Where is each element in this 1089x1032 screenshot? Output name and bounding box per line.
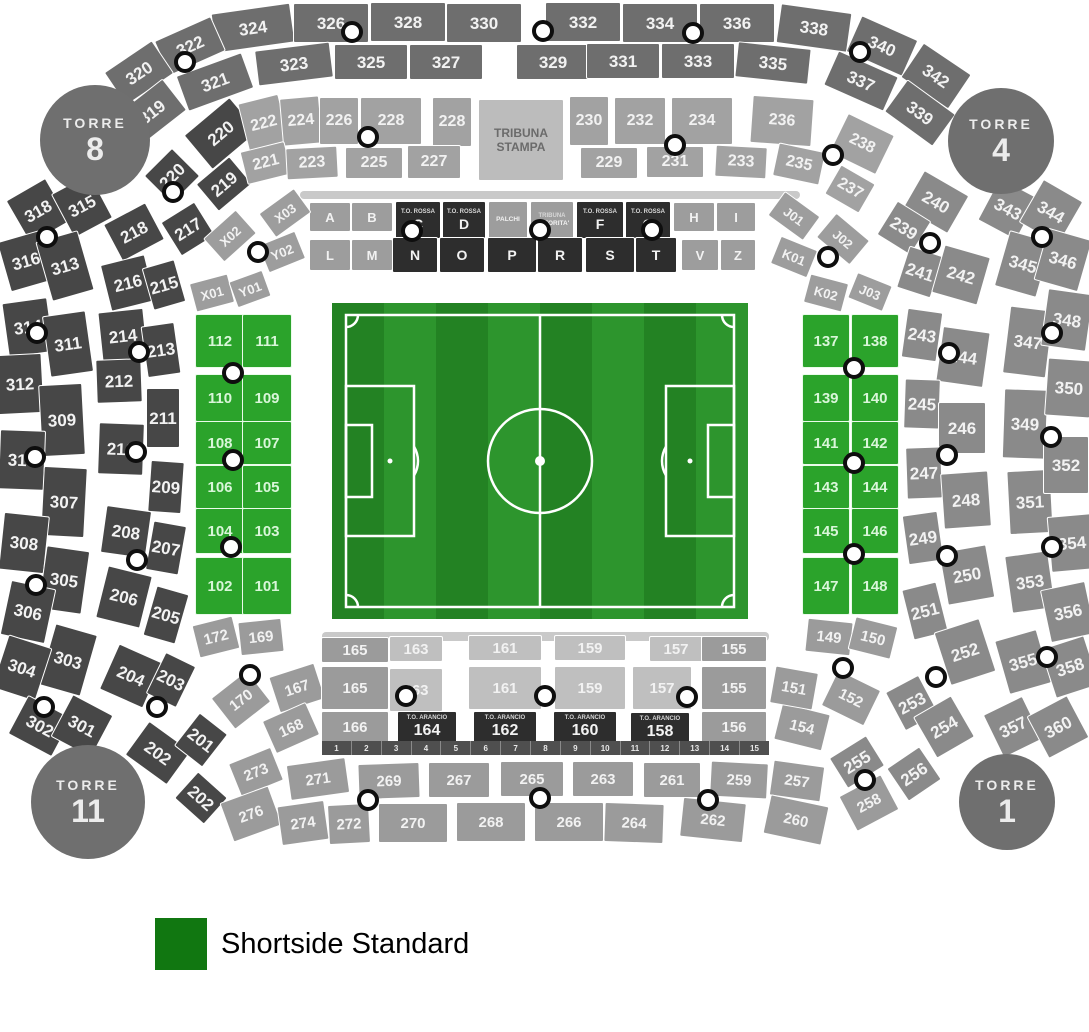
section-107[interactable]: 107 xyxy=(242,421,292,465)
section-label: 147 xyxy=(813,579,838,594)
row-number-cell: 5 xyxy=(441,741,470,755)
section-sublabel: T.O. ROSSA xyxy=(583,209,617,216)
seat-view-marker[interactable] xyxy=(936,444,958,466)
row-number-cell: 4 xyxy=(412,741,441,755)
seat-view-marker[interactable] xyxy=(682,22,704,44)
section-166: 166 xyxy=(321,711,389,743)
section-label: 305 xyxy=(49,570,79,591)
seat-view-marker[interactable] xyxy=(1031,226,1053,248)
seat-view-marker[interactable] xyxy=(126,549,148,571)
section-label: 247 xyxy=(910,464,939,482)
section-y01: Y01 xyxy=(228,270,271,309)
section-312: 312 xyxy=(0,353,45,415)
section-label: 212 xyxy=(105,372,134,390)
section-264: 264 xyxy=(603,802,664,844)
seat-view-marker[interactable] xyxy=(849,41,871,63)
torre-number: 8 xyxy=(86,133,104,165)
section-sublabel: T.O. ARANCIO xyxy=(565,715,605,722)
section-l: L xyxy=(309,239,351,271)
section-label: 345 xyxy=(1007,252,1039,276)
section-label: X02 xyxy=(217,223,243,248)
section-103[interactable]: 103 xyxy=(242,508,292,554)
section-label: 250 xyxy=(952,564,983,586)
section-143[interactable]: 143 xyxy=(802,465,850,509)
seat-view-marker[interactable] xyxy=(222,449,244,471)
section-label: 102 xyxy=(207,579,232,594)
section-308: 308 xyxy=(0,512,50,574)
seat-view-marker[interactable] xyxy=(529,219,551,241)
upper-walkway-band xyxy=(300,191,800,199)
section-label: R xyxy=(555,248,565,262)
torre-name: TORRE xyxy=(975,777,1039,793)
seat-view-marker[interactable] xyxy=(401,220,423,242)
section-154: 154 xyxy=(773,703,831,752)
section-label: 141 xyxy=(813,436,838,451)
torre-number: 4 xyxy=(992,134,1010,166)
seat-view-marker[interactable] xyxy=(341,21,363,43)
pitch-lines xyxy=(332,303,748,619)
section-label: 158 xyxy=(647,724,674,740)
section-v: V xyxy=(681,239,719,271)
section-label: 309 xyxy=(47,411,76,429)
section-164: T.O. ARANCIO164 xyxy=(397,711,457,743)
seat-view-marker[interactable] xyxy=(854,769,876,791)
seat-view-marker[interactable] xyxy=(534,685,556,707)
seat-view-marker[interactable] xyxy=(676,686,698,708)
section-label: A xyxy=(325,211,334,224)
seat-view-marker[interactable] xyxy=(128,341,150,363)
legend: Shortside Standard xyxy=(155,918,469,970)
section-label: 271 xyxy=(305,770,332,788)
section-label: 313 xyxy=(49,254,81,278)
section-349: 349 xyxy=(1002,388,1048,459)
section-label: 143 xyxy=(813,480,838,495)
section-label: 349 xyxy=(1011,415,1040,433)
section-label: 228 xyxy=(439,114,466,130)
section-232: 232 xyxy=(614,97,666,145)
section-233: 233 xyxy=(714,145,768,180)
section-label: 162 xyxy=(492,723,519,739)
section-335: 335 xyxy=(734,41,811,85)
seat-view-marker[interactable] xyxy=(395,685,417,707)
section-label: 166 xyxy=(342,720,367,735)
section-sublabel: T.O. ARANCIO xyxy=(640,716,680,723)
section-165: 165 xyxy=(321,666,389,710)
section-157: 157 xyxy=(649,636,703,662)
seat-view-marker[interactable] xyxy=(822,144,844,166)
seat-view-marker[interactable] xyxy=(843,357,865,379)
row-number-cell: 12 xyxy=(650,741,679,755)
section-label: 339 xyxy=(904,98,937,128)
section-label: D xyxy=(459,217,469,231)
section-label: 312 xyxy=(5,375,34,393)
seat-view-marker[interactable] xyxy=(843,452,865,474)
section-label: I xyxy=(734,211,738,224)
row-number-cell: 14 xyxy=(710,741,739,755)
row-number-cell: 2 xyxy=(352,741,381,755)
section-label: 145 xyxy=(813,524,838,539)
section-label: 219 xyxy=(208,168,241,199)
seat-view-marker[interactable] xyxy=(239,664,261,686)
row-number-cell: 13 xyxy=(680,741,709,755)
section-o: O xyxy=(439,237,485,273)
section-label: 164 xyxy=(414,723,441,739)
section-235: 235 xyxy=(772,142,826,185)
section-label: V xyxy=(696,249,705,262)
section-label: 226 xyxy=(326,113,353,129)
section-label: 320 xyxy=(122,58,155,88)
section-label: 157 xyxy=(663,642,688,657)
torre-4: TORRE4 xyxy=(948,88,1054,194)
section-label: 160 xyxy=(572,723,599,739)
section-label: 352 xyxy=(1052,457,1080,474)
section-label: 344 xyxy=(1034,198,1067,227)
section-label: 150 xyxy=(859,628,887,649)
section-label: 251 xyxy=(909,599,941,622)
section-label: 336 xyxy=(723,15,751,32)
section-label: 332 xyxy=(569,14,597,31)
section-207: 207 xyxy=(145,520,187,575)
section-227: 227 xyxy=(407,145,461,179)
section-n: N xyxy=(392,237,438,273)
section-label: X01 xyxy=(199,284,225,303)
seat-view-marker[interactable] xyxy=(222,362,244,384)
row-number-cell: 8 xyxy=(531,741,560,755)
section-m: M xyxy=(351,239,393,271)
row-number-cell: 11 xyxy=(621,741,650,755)
seat-view-marker[interactable] xyxy=(125,441,147,463)
section-338: 338 xyxy=(776,3,853,53)
section-139[interactable]: 139 xyxy=(802,374,850,422)
section-165: 165 xyxy=(321,637,389,663)
section-label: 355 xyxy=(1007,650,1039,674)
section-label: 256 xyxy=(897,759,930,789)
section-label: 161 xyxy=(492,641,517,656)
seat-view-marker[interactable] xyxy=(832,657,854,679)
section-109[interactable]: 109 xyxy=(242,374,292,422)
section-330: 330 xyxy=(446,3,522,43)
section-label: 238 xyxy=(846,131,877,157)
section-236: 236 xyxy=(749,95,814,147)
section-label: 144 xyxy=(862,480,887,495)
section-212: 212 xyxy=(95,358,143,404)
section-229: 229 xyxy=(580,147,638,179)
section-label: 259 xyxy=(726,772,752,788)
row-number-cell: 15 xyxy=(740,741,769,755)
section-label: 257 xyxy=(784,772,811,790)
seat-view-marker[interactable] xyxy=(146,696,168,718)
section-label: 235 xyxy=(784,153,813,174)
seat-view-marker[interactable] xyxy=(936,545,958,567)
section-label: 101 xyxy=(254,579,279,594)
section-label: 245 xyxy=(908,395,937,413)
section-label: 207 xyxy=(151,537,182,559)
section-label: H xyxy=(689,211,698,224)
section-k01: K01 xyxy=(770,236,818,279)
section-label: 156 xyxy=(721,720,746,735)
section-106[interactable]: 106 xyxy=(195,465,245,509)
section-label: 325 xyxy=(357,54,385,71)
section-206: 206 xyxy=(95,565,153,629)
section-s: S xyxy=(585,237,635,273)
section-label: 342 xyxy=(919,61,952,91)
section-label: 329 xyxy=(539,54,567,71)
section-label: 203 xyxy=(155,666,188,694)
section-101[interactable]: 101 xyxy=(242,557,292,615)
torre-number: 1 xyxy=(998,795,1016,827)
section-159: 159 xyxy=(554,635,626,661)
section-112[interactable]: 112 xyxy=(195,314,245,368)
section-label: 315 xyxy=(65,192,98,220)
legend-label: Shortside Standard xyxy=(221,928,469,961)
section-label: 112 xyxy=(208,334,232,349)
seat-view-marker[interactable] xyxy=(919,232,941,254)
section-label: 215 xyxy=(148,273,180,297)
row-number-cell: 10 xyxy=(591,741,620,755)
section-label: 202 xyxy=(142,738,175,768)
section-label: 208 xyxy=(111,522,141,543)
section-350: 350 xyxy=(1044,357,1089,418)
section-label: 324 xyxy=(238,18,268,39)
section-label: 337 xyxy=(845,67,878,94)
section-d: T.O. ROSSAD xyxy=(442,201,486,239)
section-169: 169 xyxy=(237,618,284,656)
seat-view-marker[interactable] xyxy=(1041,536,1063,558)
seat-view-marker[interactable] xyxy=(532,20,554,42)
seat-view-marker[interactable] xyxy=(843,543,865,565)
section-label: 111 xyxy=(255,334,278,349)
section-label: 323 xyxy=(279,54,309,74)
section-k02: K02 xyxy=(803,273,849,312)
section-137[interactable]: 137 xyxy=(802,314,850,368)
section-label: 157 xyxy=(649,681,674,696)
section-p: P xyxy=(487,237,537,273)
seat-view-marker[interactable] xyxy=(24,446,46,468)
section-209: 209 xyxy=(147,460,185,514)
section-label: 334 xyxy=(646,15,674,32)
section-label: 228 xyxy=(378,113,405,129)
torre-1: TORRE1 xyxy=(959,754,1055,850)
seat-view-marker[interactable] xyxy=(1041,322,1063,344)
section-274: 274 xyxy=(276,800,329,846)
seat-view-marker[interactable] xyxy=(1036,646,1058,668)
section-label: 159 xyxy=(577,681,602,696)
row-number-cell: 9 xyxy=(561,741,590,755)
section-label: 338 xyxy=(799,18,829,39)
section-140[interactable]: 140 xyxy=(851,374,899,422)
legend-swatch-shortside-standard xyxy=(155,918,207,970)
seat-view-marker[interactable] xyxy=(33,696,55,718)
section-325: 325 xyxy=(334,44,408,80)
seat-view-marker[interactable] xyxy=(36,226,58,248)
seat-view-marker[interactable] xyxy=(1040,426,1062,448)
section-205: 205 xyxy=(142,585,189,644)
section-label: 169 xyxy=(248,628,274,646)
seat-row-number-strip: 123456789101112131415 xyxy=(322,741,769,755)
section-111[interactable]: 111 xyxy=(242,314,292,368)
section-329: 329 xyxy=(516,44,590,80)
section-102[interactable]: 102 xyxy=(195,557,245,615)
seat-view-marker[interactable] xyxy=(220,536,242,558)
section-label: M xyxy=(367,249,378,262)
section-label: 202 xyxy=(185,782,217,814)
seat-view-marker[interactable] xyxy=(25,574,47,596)
section-label: J03 xyxy=(857,282,882,302)
section-h: H xyxy=(673,202,715,232)
section-label: N xyxy=(410,248,420,262)
seat-view-marker[interactable] xyxy=(357,126,379,148)
section-label: 218 xyxy=(117,218,150,246)
seat-view-marker[interactable] xyxy=(925,666,947,688)
section-label: 335 xyxy=(758,53,788,73)
section-label: 108 xyxy=(207,436,232,451)
section-356: 356 xyxy=(1040,581,1089,643)
section-label: 105 xyxy=(254,480,279,495)
seat-view-marker[interactable] xyxy=(529,787,551,809)
section-label: 243 xyxy=(907,325,937,346)
section-label: 356 xyxy=(1052,601,1083,624)
section-label: 167 xyxy=(283,677,311,699)
section-label: PALCHI xyxy=(496,217,520,224)
section-label: 258 xyxy=(854,791,883,816)
section-sublabel: T.O. ROSSA xyxy=(631,209,665,216)
section-248: 248 xyxy=(940,470,992,529)
section-a: A xyxy=(309,202,351,232)
section-label: 230 xyxy=(576,113,603,129)
section-label: 261 xyxy=(659,773,684,788)
torre-name: TORRE xyxy=(56,777,120,793)
row-number-cell: 6 xyxy=(471,741,500,755)
section-311: 311 xyxy=(42,310,94,378)
section-sublabel: TRIBUNA xyxy=(494,127,548,140)
seat-view-marker[interactable] xyxy=(162,181,184,203)
section-label: 306 xyxy=(12,601,43,624)
section-172: 172 xyxy=(192,615,241,658)
section-243: 243 xyxy=(901,308,944,363)
section-label: 301 xyxy=(65,712,98,740)
section-label: T xyxy=(652,248,661,262)
section-label: J01 xyxy=(781,204,806,227)
section-label: 139 xyxy=(813,391,838,406)
section-j03: J03 xyxy=(847,272,893,312)
section-label: STAMPA xyxy=(497,141,546,153)
section-226: 226 xyxy=(319,97,359,145)
section-label: 237 xyxy=(834,175,865,202)
row-number-cell: 3 xyxy=(382,741,411,755)
section-label: 163 xyxy=(403,642,428,657)
section-label: F xyxy=(596,217,605,231)
section-label: 225 xyxy=(361,155,388,171)
section-label: Z xyxy=(734,249,742,262)
section-label: 268 xyxy=(478,815,503,830)
section-label: 213 xyxy=(146,340,176,361)
section-label: 360 xyxy=(1041,713,1074,741)
section-label: Y01 xyxy=(237,279,263,299)
section-label: 229 xyxy=(596,155,623,171)
section-211: 211 xyxy=(146,388,180,448)
section-261: 261 xyxy=(643,762,701,798)
seat-view-marker[interactable] xyxy=(174,51,196,73)
section-105[interactable]: 105 xyxy=(242,465,292,509)
section-label: X03 xyxy=(272,201,298,225)
section-259: 259 xyxy=(709,761,769,800)
section-label: 140 xyxy=(862,391,887,406)
section-label: 204 xyxy=(115,662,148,689)
section-label: 103 xyxy=(254,524,279,539)
seat-view-marker[interactable] xyxy=(664,134,686,156)
section-label: 209 xyxy=(151,478,180,497)
section-stampa: TRIBUNASTAMPA xyxy=(478,99,564,181)
section-x01: X01 xyxy=(189,273,235,312)
section-z: Z xyxy=(720,239,756,271)
section-label: K02 xyxy=(813,284,839,303)
section-label: 248 xyxy=(951,491,980,510)
section-202: 202 xyxy=(174,771,228,825)
seat-view-marker[interactable] xyxy=(26,322,48,344)
section-336: 336 xyxy=(699,3,775,43)
section-label: 327 xyxy=(432,54,460,71)
seat-view-marker[interactable] xyxy=(641,219,663,241)
section-327: 327 xyxy=(409,44,483,80)
section-271: 271 xyxy=(286,757,350,801)
section-label: 168 xyxy=(277,716,306,740)
section-145[interactable]: 145 xyxy=(802,508,850,554)
section-304: 304 xyxy=(0,634,53,701)
section-label: 328 xyxy=(394,14,422,31)
row-number-cell: 7 xyxy=(501,741,530,755)
section-label: 303 xyxy=(52,648,84,672)
section-t: T xyxy=(635,237,677,273)
seat-view-marker[interactable] xyxy=(357,789,379,811)
seat-view-marker[interactable] xyxy=(817,246,839,268)
section-label: 264 xyxy=(621,815,647,831)
section-sublabel: T.O. ROSSA xyxy=(447,209,481,216)
seat-view-marker[interactable] xyxy=(938,342,960,364)
section-label: 263 xyxy=(590,772,615,787)
section-148[interactable]: 148 xyxy=(851,557,899,615)
section-323: 323 xyxy=(254,42,334,87)
section-label: 236 xyxy=(768,112,796,130)
stadium-seat-map: 3243263283303323343363383403423223203213… xyxy=(0,0,1089,1032)
section-label: 155 xyxy=(721,681,746,696)
section-label: 170 xyxy=(227,686,256,713)
section-163: 163 xyxy=(389,636,443,662)
section-label: 227 xyxy=(421,154,448,170)
section-label: 222 xyxy=(249,113,279,135)
section-label: L xyxy=(326,249,334,262)
section-label: 270 xyxy=(400,816,425,831)
section-276: 276 xyxy=(219,785,282,842)
seat-view-marker[interactable] xyxy=(697,789,719,811)
seat-view-marker[interactable] xyxy=(247,241,269,263)
section-label: 107 xyxy=(254,436,279,451)
section-245: 245 xyxy=(903,378,941,429)
section-label: 242 xyxy=(945,263,977,287)
section-label: S xyxy=(605,248,614,262)
section-224: 224 xyxy=(279,95,323,146)
section-b: B xyxy=(351,202,393,232)
section-label: 211 xyxy=(149,410,176,427)
section-159: 159 xyxy=(554,666,626,710)
section-147[interactable]: 147 xyxy=(802,557,850,615)
section-label: 340 xyxy=(866,32,899,59)
section-label: 249 xyxy=(908,528,938,549)
section-label: B xyxy=(367,211,376,224)
section-f: T.O. ROSSAF xyxy=(576,201,624,239)
section-label: 106 xyxy=(207,480,232,495)
section-label: 262 xyxy=(700,811,726,829)
section-label: 304 xyxy=(6,656,38,681)
